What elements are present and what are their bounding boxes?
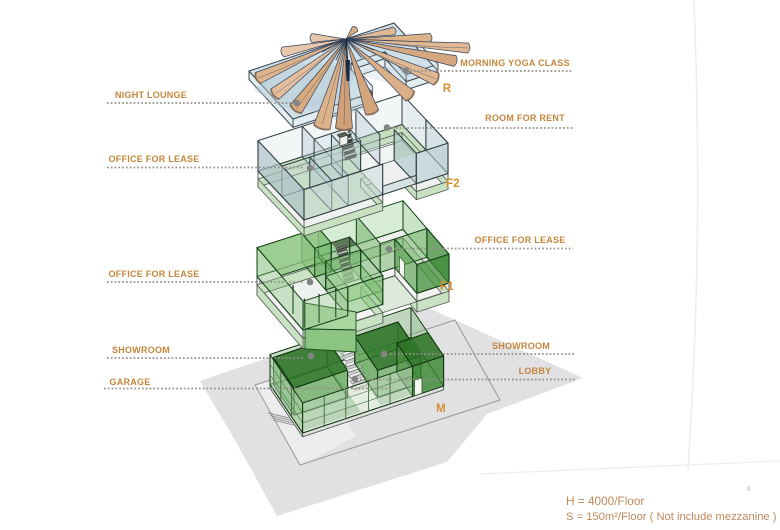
svg-text:SHOWROOM: SHOWROOM (492, 341, 550, 351)
svg-text:OFFICE FOR LEASE: OFFICE FOR LEASE (108, 269, 199, 279)
svg-text:F2: F2 (446, 178, 460, 190)
svg-text:M: M (436, 403, 446, 415)
svg-text:LOBBY: LOBBY (519, 366, 552, 376)
svg-text:OFFICE FOR LEASE: OFFICE FOR LEASE (474, 235, 565, 245)
svg-text:F1: F1 (440, 281, 454, 293)
svg-text:SHOWROOM: SHOWROOM (112, 345, 170, 355)
svg-text:GARAGE: GARAGE (109, 377, 150, 387)
svg-text:R: R (443, 83, 452, 95)
svg-text:H = 4000/Floor: H = 4000/Floor (566, 494, 644, 508)
svg-text:MORNING YOGA CLASS: MORNING YOGA CLASS (460, 58, 570, 68)
svg-text:OFFICE FOR LEASE: OFFICE FOR LEASE (108, 154, 199, 164)
svg-text:NIGHT LOUNGE: NIGHT LOUNGE (115, 90, 187, 100)
svg-text:ROOM FOR RENT: ROOM FOR RENT (485, 113, 565, 123)
svg-text:S = 150m²/Floor ( Not include: S = 150m²/Floor ( Not include mezzanine … (566, 511, 777, 523)
